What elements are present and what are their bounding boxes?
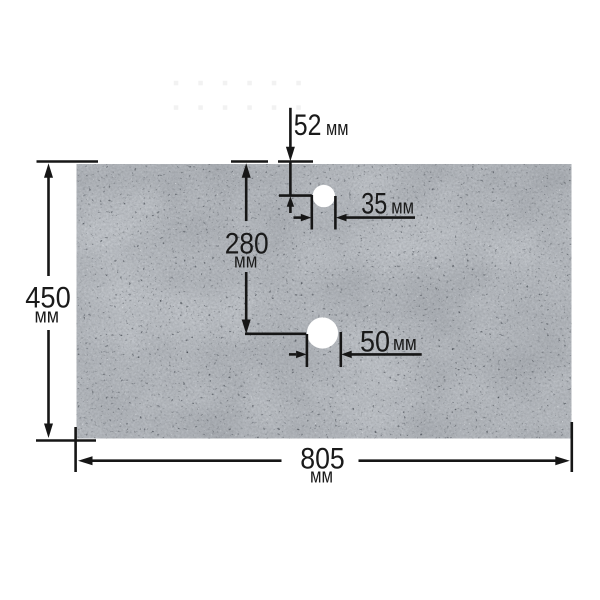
svg-text:мм: мм: [393, 333, 417, 355]
svg-text:50: 50: [360, 326, 390, 359]
svg-text:мм: мм: [35, 306, 60, 328]
svg-text:мм: мм: [326, 118, 349, 140]
svg-text:35: 35: [361, 188, 387, 221]
svg-text:52: 52: [294, 109, 322, 142]
svg-text:мм: мм: [391, 197, 414, 219]
svg-text:мм: мм: [310, 465, 333, 487]
svg-text:мм: мм: [234, 251, 257, 273]
